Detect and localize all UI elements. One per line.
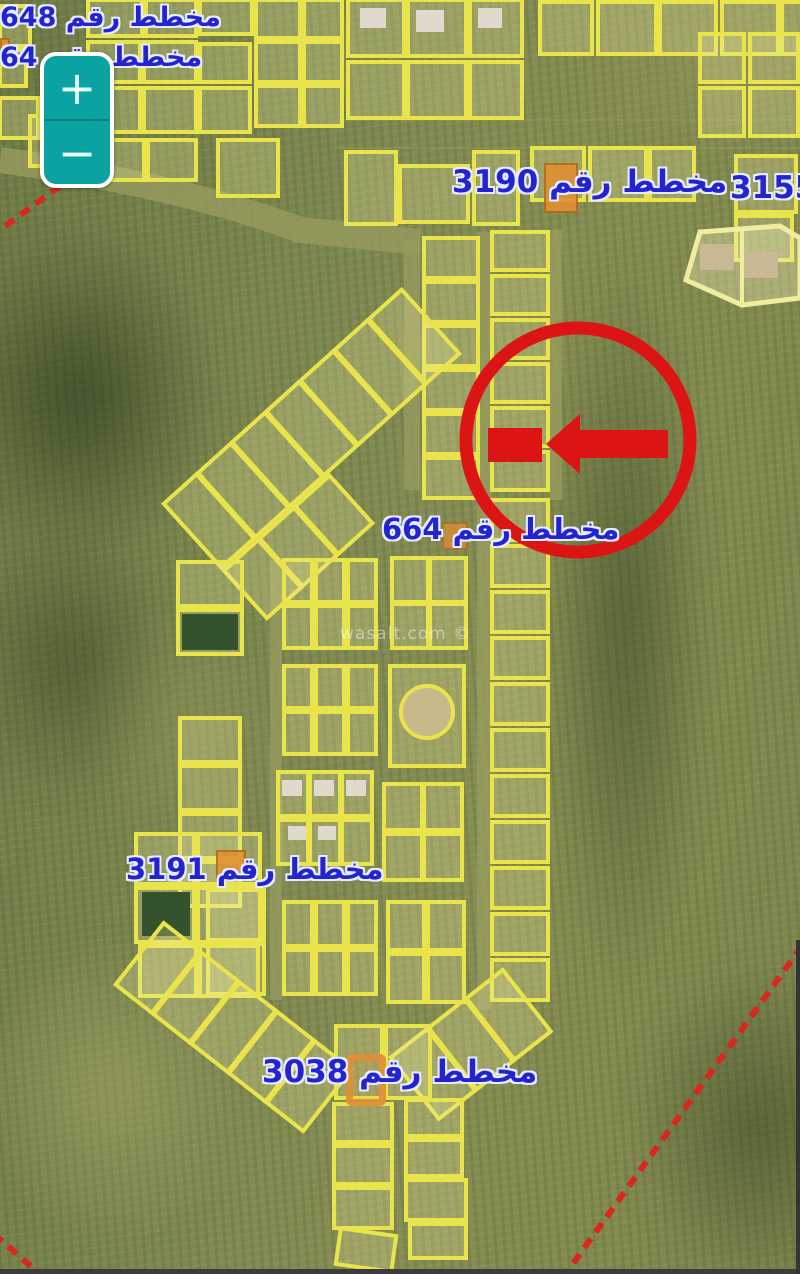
plot-marker [488, 428, 542, 462]
parcel-column-tail [334, 1100, 466, 1272]
letterbox-bottom [0, 1269, 800, 1274]
plan-label-3191: مخطط رقم 3191 [126, 852, 384, 886]
zoom-out-button[interactable]: − [44, 121, 110, 184]
plan-label-648: مخطط رقم 648 [0, 2, 221, 33]
watermark: wasalt.com © [340, 624, 471, 644]
map-canvas[interactable]: مخطط رقم 648 مخطط رقم 64 مخطط رقم 3190 3… [0, 0, 800, 1274]
left-arrow-icon [546, 414, 668, 474]
zoom-control: + − [40, 52, 114, 188]
letterbox-right [796, 940, 800, 1274]
plan-label-664: مخطط رقم 664 [382, 512, 619, 546]
plan-label-3038: مخطط رقم 3038 [262, 1054, 537, 1090]
zoom-in-button[interactable]: + [44, 56, 110, 119]
plan-label-3155: 3155 [730, 170, 800, 206]
plan-label-3190: مخطط رقم 3190 [452, 164, 727, 200]
